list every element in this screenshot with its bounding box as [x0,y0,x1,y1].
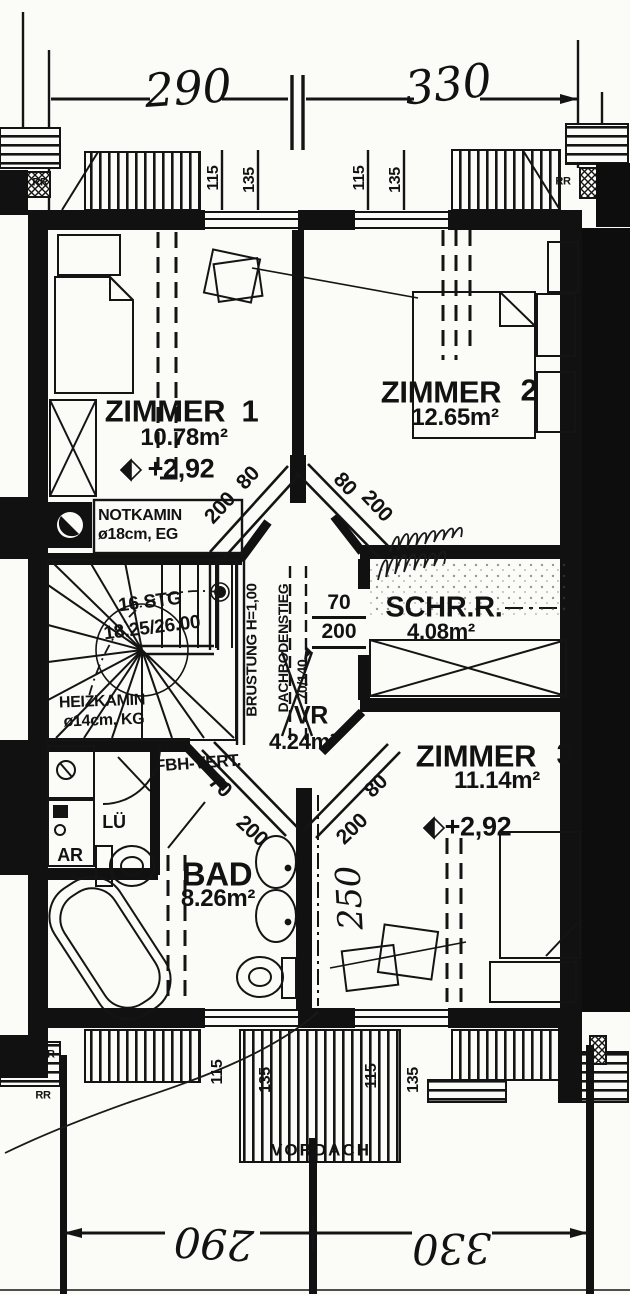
zimmer1-number: 1 [242,396,259,427]
zimmer1-name: ZIMMER [105,396,225,427]
toilet-2 [237,957,296,998]
rr-label-top-left: RR [32,178,47,189]
schrankraum-area: 4.08m² [407,621,475,643]
bruestung-label: BRÜSTUNG H=1,00 [245,583,260,716]
zimmer3-number: 3 [557,739,574,770]
rr-label-bottom-left-2: RR [35,1091,50,1102]
schrankraum-door-dims: 70 200 [312,590,366,649]
zimmer1-level: +2,92 [148,456,215,483]
rr-label-top-right: RR [555,177,570,188]
window-dim-height-tl: 135 [242,167,258,193]
notkamin-line1: NOTKAMIN [98,508,182,524]
window-dim-height-tr: 135 [388,167,404,193]
sink-2 [256,890,296,942]
rr-label-bottom-left-1: RR [39,1050,54,1061]
zimmer1-area: 10.78m² [140,426,227,450]
window-dim-sill-bl: 115 [210,1060,226,1085]
floor-plan-scan: 290 330 115 135 115 135 RR RR RR RR RR Z… [0,0,630,1294]
zimmer3-level: +2,92 [445,814,512,841]
window-dim-sill-tl: 115 [206,166,222,191]
window-bottom-right [355,1010,448,1026]
schrankraum-door-height: 200 [312,619,366,648]
zimmer2-area: 12.65m² [411,406,498,430]
bad-area: 8.26m² [181,887,255,911]
zimmer1-furniture [50,235,418,496]
window-top-left [205,212,298,228]
rr-label-bottom-right: RR [561,1037,576,1048]
vorraum-name: VR [294,704,328,729]
heizkamin-line1: HEIZKAMIN [59,693,146,712]
level-marker-z3 [424,818,444,838]
window-dim-sill-tr: 115 [352,166,368,191]
window-top-right [355,212,448,228]
level-marker-z1 [121,460,141,480]
abstellraum-label: AR [57,846,82,864]
bathtub [36,864,183,1032]
schrankraum-door-width: 70 [312,590,366,619]
zimmer3-area: 11.14m² [454,769,540,793]
heizkamin-line2: ø14cm, KG [63,712,144,731]
window-dim-sill-br: 115 [364,1064,380,1089]
zimmer2-name: ZIMMER [381,377,501,408]
window-dim-height-bl: 135 [258,1067,274,1093]
dim-bottom-right: 330 [412,1226,492,1269]
dachbodenstieg-label: DACHBODENSTIEG [276,584,290,713]
hand-note-250: 250 [331,865,368,931]
dachbodenstieg-dim: 70/140 [295,659,309,700]
dim-bottom-left: 290 [173,1220,254,1266]
vorraum-area: 4.24m² [269,731,337,753]
dim-top-right: 330 [402,57,493,112]
notkamin-line2: ø18cm, EG [98,527,178,543]
dim-top-left: 290 [143,62,233,114]
vordach-label: VORDACH [271,1142,371,1159]
window-bottom-left [205,1010,298,1026]
bad-fixtures [36,746,296,1032]
zimmer2-number: 2 [521,375,538,406]
window-dim-height-br: 135 [406,1067,422,1093]
lueftung-label: LÜ [102,813,125,831]
